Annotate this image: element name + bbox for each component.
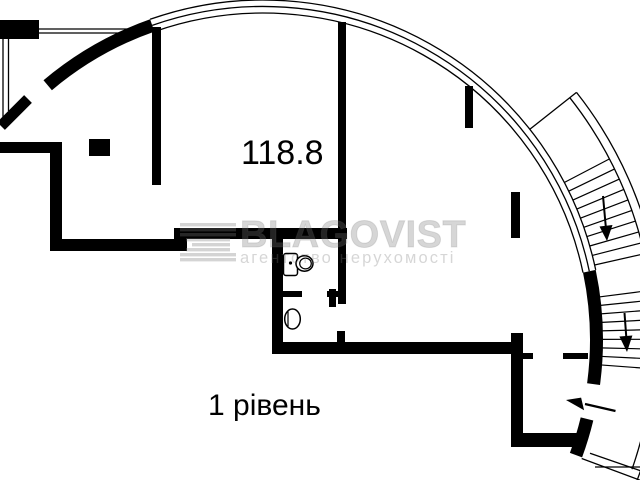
svg-text:118.8: 118.8 [241, 134, 324, 172]
svg-text:1 рівень: 1 рівень [208, 389, 321, 422]
svg-text:агентство нерухомості: агентство нерухомості [240, 249, 456, 267]
